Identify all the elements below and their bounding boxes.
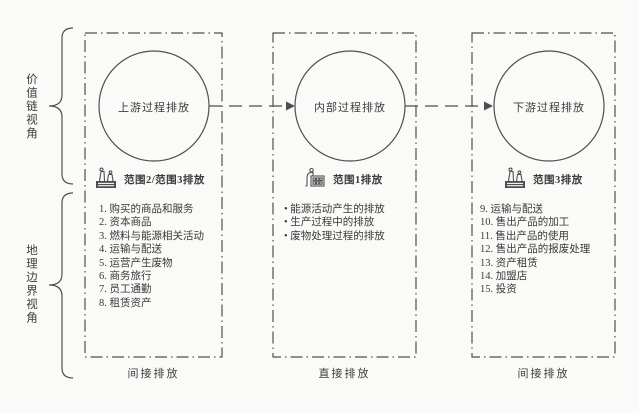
factory-smoke-icon bbox=[94, 167, 118, 191]
list-item: 7. 员工通勤 bbox=[99, 283, 221, 296]
list-item: 6. 商务旅行 bbox=[99, 270, 221, 283]
flow-arrow-2-head bbox=[484, 102, 493, 111]
value-chain-brace bbox=[49, 28, 73, 184]
list-item: 11. 售出产品的使用 bbox=[480, 230, 615, 243]
geo-boundary-perspective-label: 地理边界视角 bbox=[23, 244, 39, 325]
list-item: 2. 资本商品 bbox=[99, 216, 221, 229]
internal-box-border bbox=[273, 33, 416, 357]
upstream-activity-list: 1. 购买的商品和服务 2. 资本商品 3. 燃料与能源相关活动 4. 运输与配… bbox=[99, 203, 221, 310]
list-item: 15. 投资 bbox=[480, 283, 615, 296]
list-item: • 废物处理过程的排放 bbox=[284, 230, 414, 243]
list-item: 4. 运输与配送 bbox=[99, 243, 221, 256]
downstream-circle-label: 下游过程排放 bbox=[494, 99, 604, 115]
list-item: • 生产过程中的排放 bbox=[284, 216, 414, 229]
internal-activity-list: • 能源活动产生的排放 • 生产过程中的排放 • 废物处理过程的排放 bbox=[284, 203, 414, 243]
factory-chimney-icon bbox=[303, 167, 327, 191]
list-item: 3. 燃料与能源相关活动 bbox=[99, 230, 221, 243]
list-item: • 能源活动产生的排放 bbox=[284, 203, 414, 216]
internal-bottom-label: 直接排放 bbox=[273, 365, 416, 381]
value-chain-perspective-label: 价值链视角 bbox=[23, 73, 39, 141]
list-item: 14. 加盟店 bbox=[480, 270, 615, 283]
list-item: 8. 租赁资产 bbox=[99, 297, 221, 310]
list-item: 5. 运营产生废物 bbox=[99, 257, 221, 270]
list-item: 1. 购买的商品和服务 bbox=[99, 203, 221, 216]
list-item: 9. 运输与配送 bbox=[480, 203, 615, 216]
internal-circle-label: 内部过程排放 bbox=[295, 99, 405, 115]
downstream-bottom-label: 间接排放 bbox=[472, 365, 615, 381]
internal-scope-label: 范围1排放 bbox=[333, 172, 383, 187]
upstream-circle-label: 上游过程排放 bbox=[99, 99, 209, 115]
list-item: 13. 资产租赁 bbox=[480, 257, 615, 270]
upstream-bottom-label: 间接排放 bbox=[85, 365, 222, 381]
upstream-scope-label: 范围2/范围3排放 bbox=[124, 172, 205, 187]
scope-emissions-diagram: 价值链视角 地理边界视角 上游过程排放 范围2/范围3排放 1. 购买的商品和服… bbox=[0, 0, 639, 413]
geo-boundary-brace bbox=[49, 193, 73, 378]
list-item: 10. 售出产品的加工 bbox=[480, 216, 615, 229]
factory-smoke-icon bbox=[503, 167, 527, 191]
flow-arrow-1-head bbox=[286, 102, 295, 111]
downstream-scope-label: 范围3排放 bbox=[533, 172, 583, 187]
downstream-box-border bbox=[472, 33, 615, 357]
list-item: 12. 售出产品的报废处理 bbox=[480, 243, 615, 256]
downstream-activity-list: 9. 运输与配送 10. 售出产品的加工 11. 售出产品的使用 12. 售出产… bbox=[480, 203, 615, 297]
